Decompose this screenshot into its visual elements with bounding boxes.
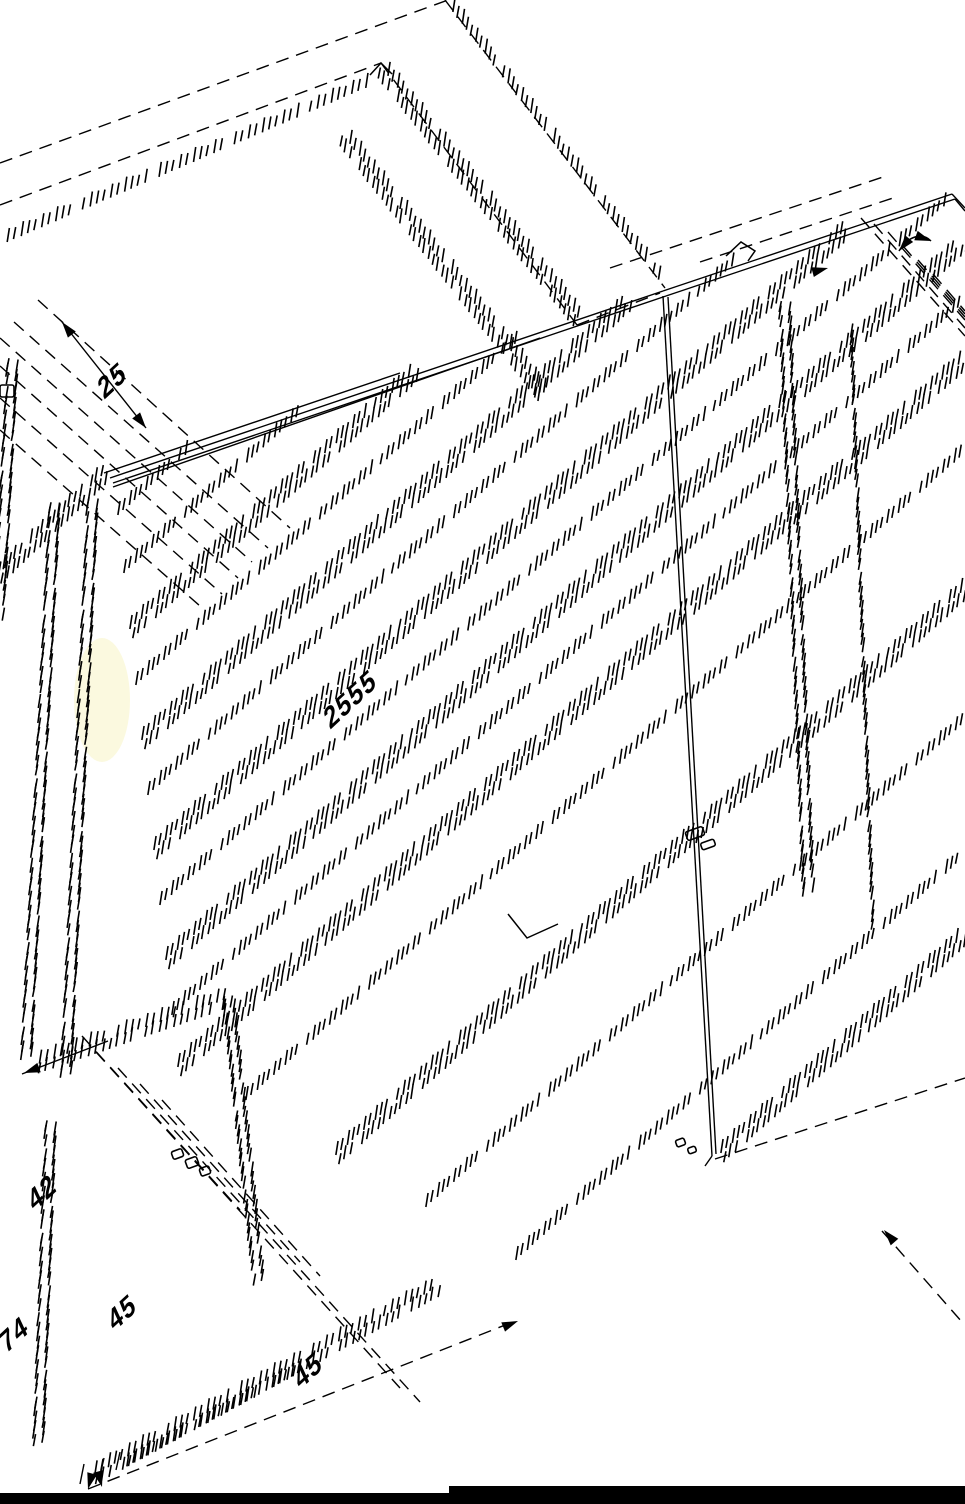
page-bottom-bar-left (0, 1493, 449, 1504)
dimension-label-bottom-b: 45 (103, 1286, 141, 1337)
page-bottom-bar-right (449, 1486, 965, 1504)
drawing-linework (0, 0, 965, 1490)
technical-drawing: 25 2555 42 45 74 45 (0, 0, 965, 1504)
highlight-smudge (74, 638, 130, 762)
dimension-label-bottom-c: 74 (0, 1308, 33, 1359)
drawing-page: 25 2555 42 45 74 45 (0, 0, 965, 1504)
